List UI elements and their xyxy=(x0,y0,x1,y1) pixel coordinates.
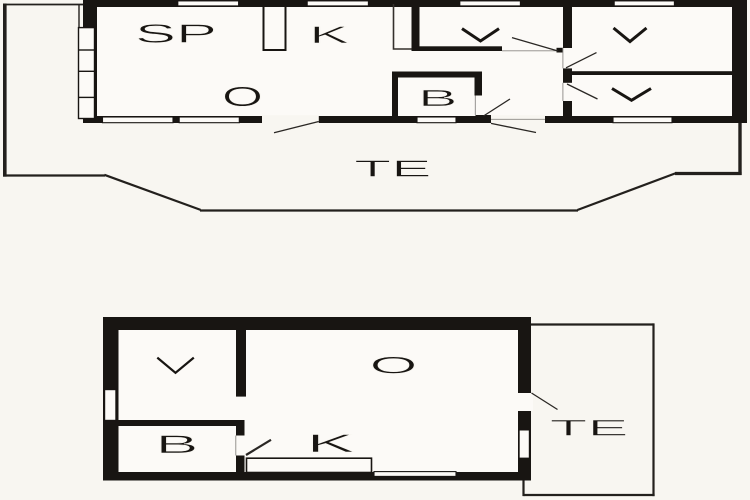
svg-text:SP: SP xyxy=(135,18,217,48)
svg-text:O: O xyxy=(370,353,418,380)
svg-text:K: K xyxy=(309,22,349,49)
svg-text:B: B xyxy=(156,432,199,459)
svg-text:O: O xyxy=(222,81,263,112)
svg-text:TE: TE xyxy=(354,155,432,181)
svg-text:TE: TE xyxy=(550,415,629,440)
svg-text:B: B xyxy=(418,85,458,111)
svg-text:K: K xyxy=(306,431,356,458)
